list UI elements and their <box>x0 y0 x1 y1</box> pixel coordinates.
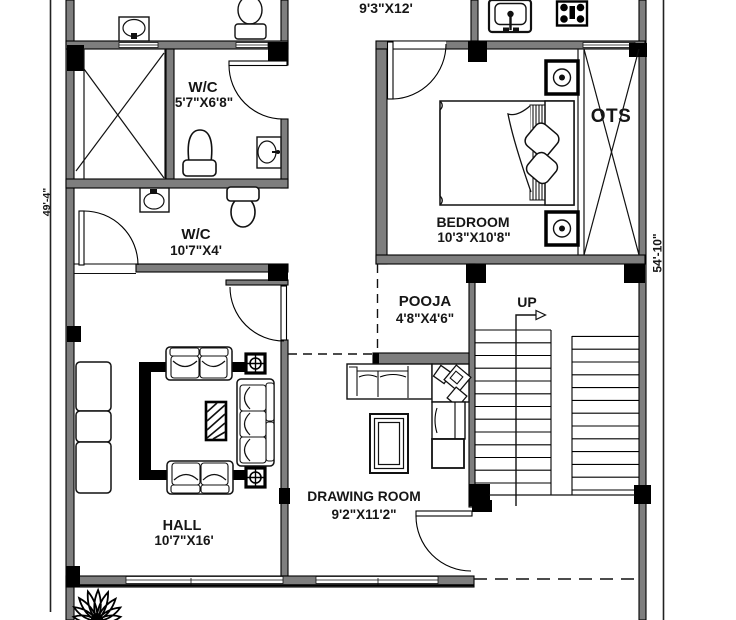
svg-text:BEDROOM: BEDROOM <box>436 214 509 230</box>
svg-text:W/C: W/C <box>181 226 210 243</box>
svg-text:W/C: W/C <box>188 79 217 96</box>
svg-text:5'7"X6'8": 5'7"X6'8" <box>175 95 233 110</box>
svg-text:DRAWING ROOM: DRAWING ROOM <box>307 489 420 504</box>
svg-text:OTS: OTS <box>591 106 632 127</box>
svg-text:10'7"X4': 10'7"X4' <box>170 243 222 258</box>
svg-text:9'3"X12': 9'3"X12' <box>359 0 413 16</box>
svg-text:4'8"X4'6": 4'8"X4'6" <box>396 311 454 326</box>
svg-text:POOJA: POOJA <box>399 293 452 310</box>
svg-text:UP: UP <box>517 294 536 310</box>
svg-text:54'-10": 54'-10" <box>651 233 665 272</box>
svg-text:49'-4": 49'-4" <box>41 188 53 217</box>
svg-text:9'2"X11'2": 9'2"X11'2" <box>331 507 396 522</box>
svg-text:10'3"X10'8": 10'3"X10'8" <box>437 230 510 245</box>
svg-text:HALL: HALL <box>163 518 202 534</box>
svg-text:10'7"X16': 10'7"X16' <box>154 533 213 548</box>
